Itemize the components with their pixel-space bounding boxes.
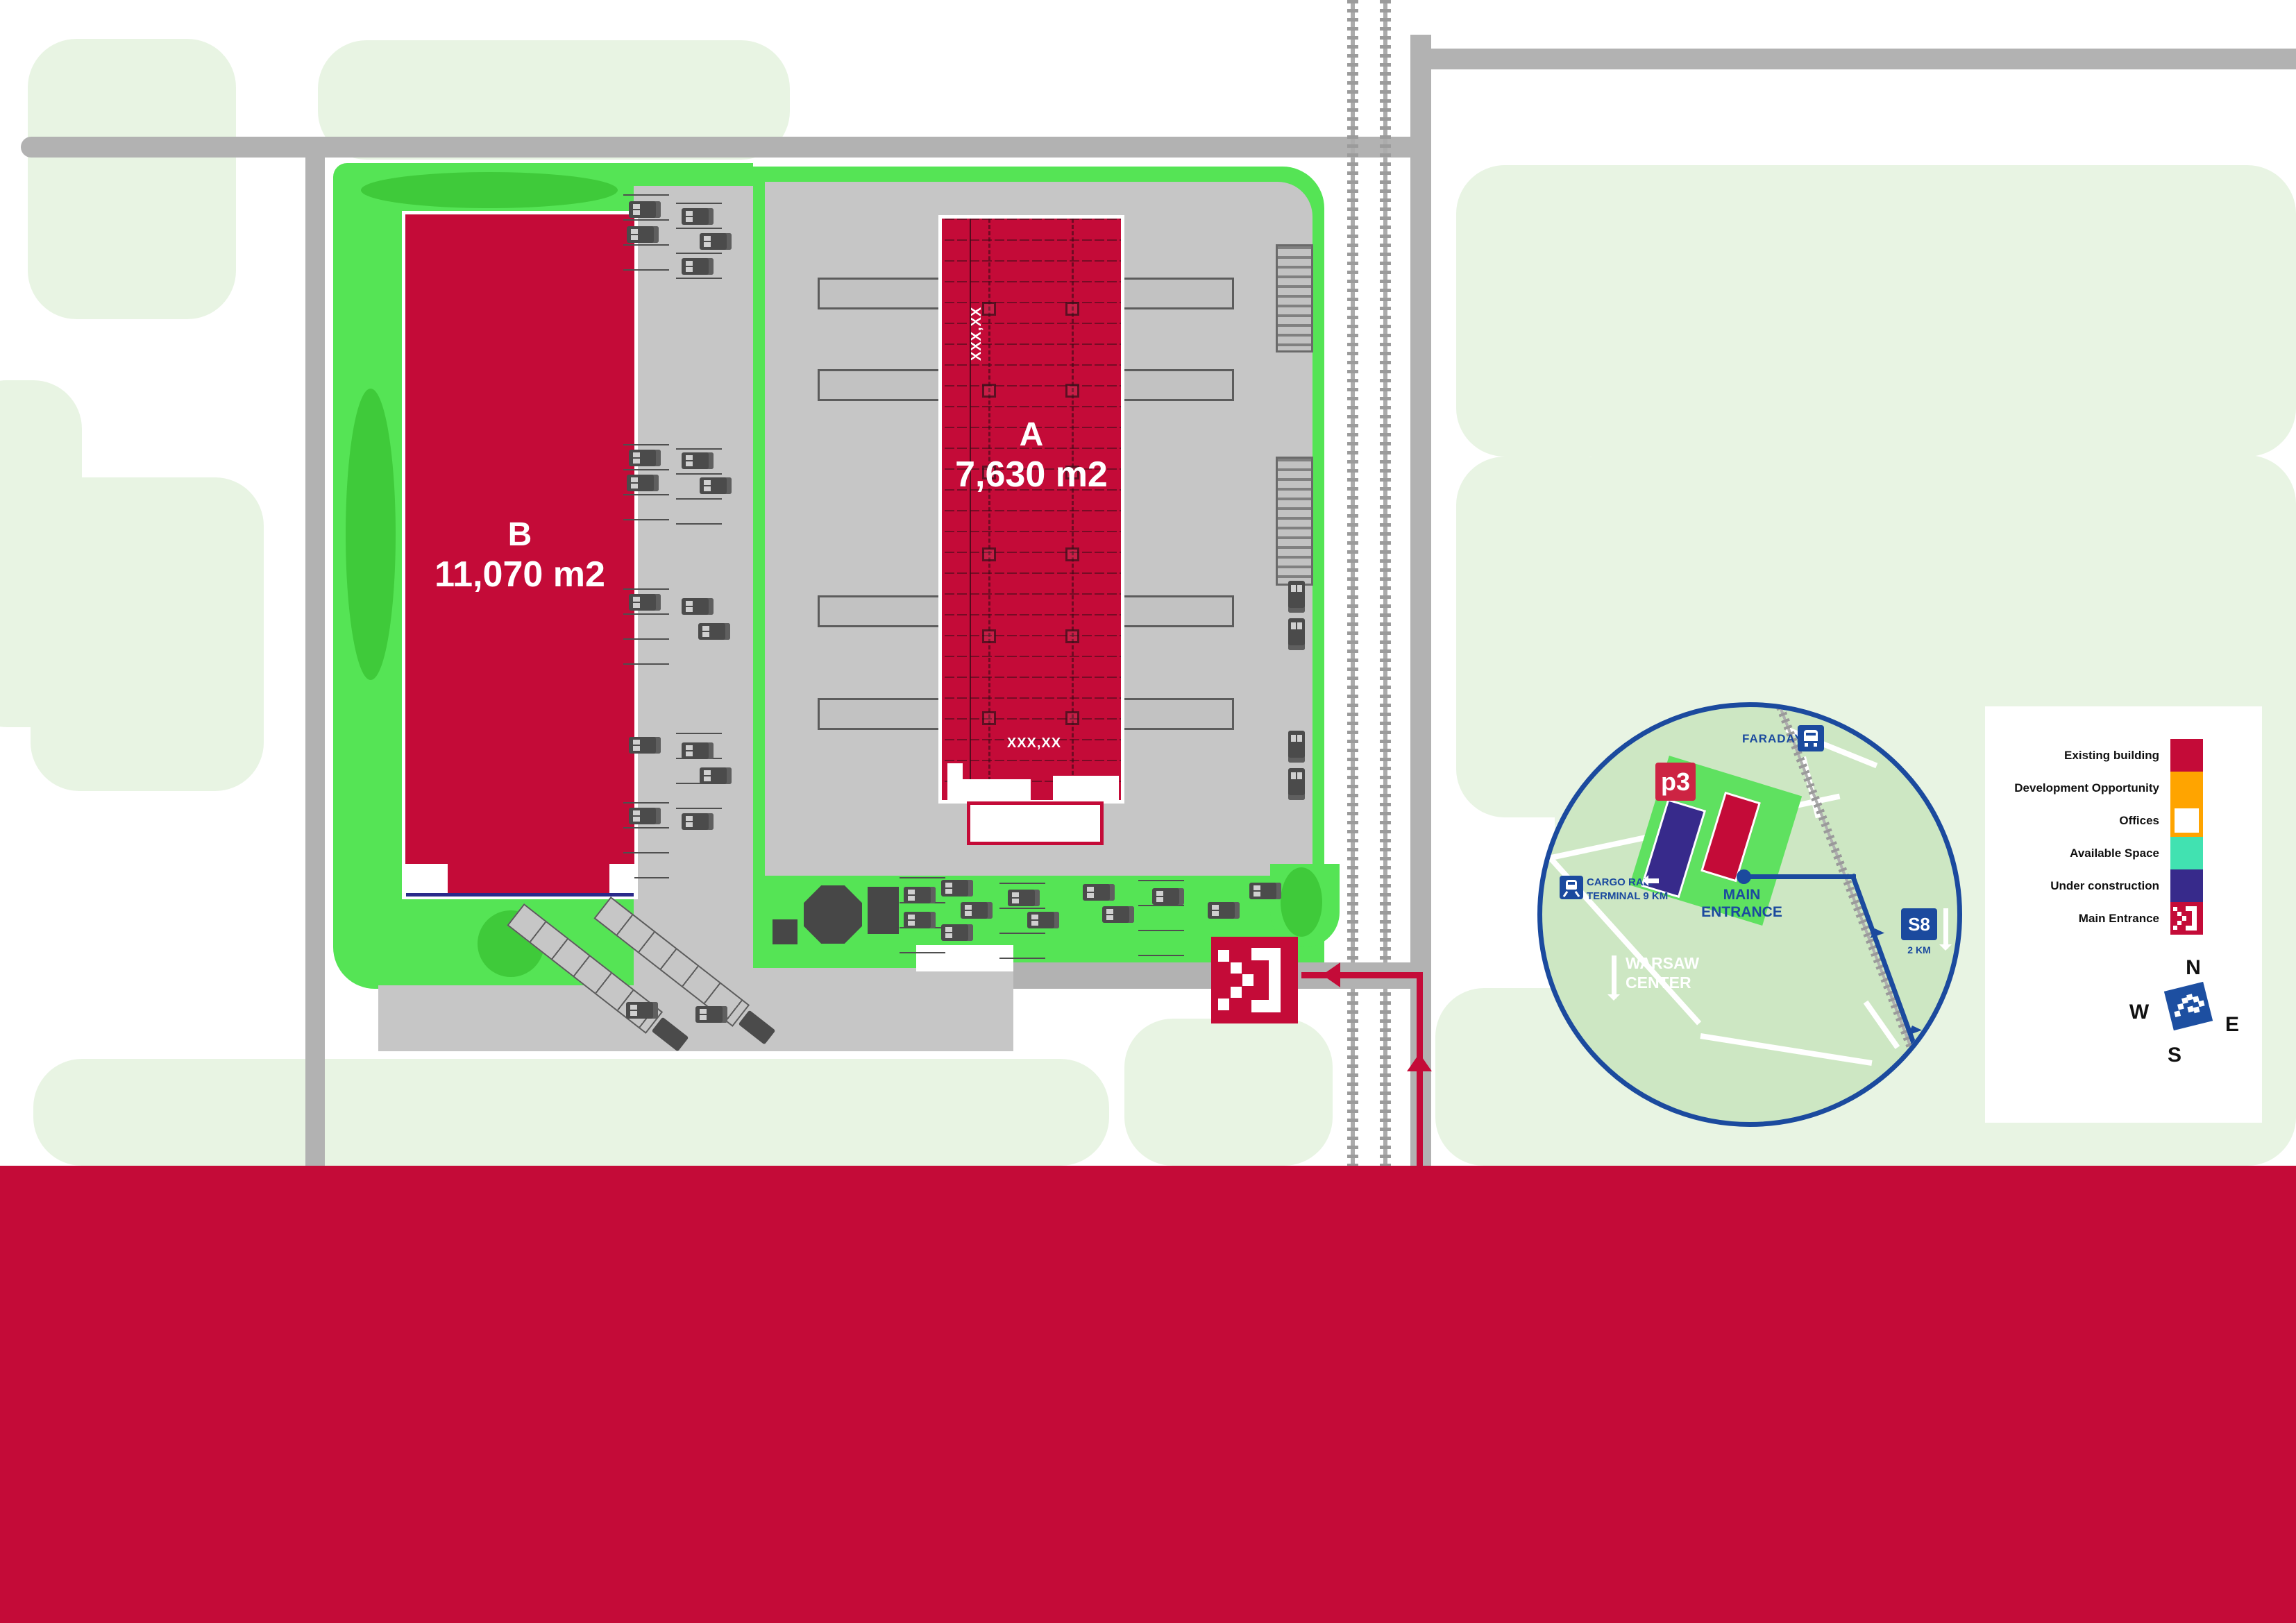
truck-icon <box>629 450 661 466</box>
truck-icon <box>904 912 936 928</box>
main-entrance-label: MAIN ENTRANCE <box>1681 886 1803 921</box>
loading-platform <box>818 278 948 309</box>
loading-platform <box>818 698 948 730</box>
office-cutout <box>609 864 634 896</box>
main-entrance-dot <box>1737 869 1751 884</box>
legend-row: Development Opportunity <box>2014 772 2203 804</box>
truck-icon <box>1152 888 1184 905</box>
road-top-right <box>1431 49 2296 69</box>
truck-icon <box>682 813 714 830</box>
truck-icon <box>629 201 661 218</box>
truck-icon <box>695 1006 727 1023</box>
legend-label: Offices <box>2119 814 2159 828</box>
legend-label: Available Space <box>2070 847 2159 860</box>
legend-label: Under construction <box>2050 879 2159 893</box>
truck-icon <box>941 880 973 897</box>
building-b-label: B 11,070 m2 <box>402 516 638 595</box>
truck-icon <box>1083 884 1115 901</box>
column-marker <box>1065 711 1079 725</box>
entrance-glyph <box>1211 937 1298 1023</box>
legend-label: Existing building <box>2064 749 2159 763</box>
building-a-area: 7,630 m2 <box>938 454 1124 495</box>
compass-north: N <box>2179 956 2207 980</box>
column-marker <box>982 547 996 561</box>
truck-icon <box>629 594 661 611</box>
location-minimap: p3 FARADAYA MAIN ENTRANCE CARGO RAIL TER… <box>1537 702 1962 1127</box>
railway-track <box>1380 0 1391 1166</box>
building-a-dim-bottom: XXX,XX <box>993 736 1076 751</box>
truck-icon <box>682 258 714 275</box>
yard-south <box>736 968 1013 1051</box>
minimap-building-existing <box>1700 792 1761 883</box>
building-a-footprint <box>942 219 1121 800</box>
park-area <box>33 1059 1109 1166</box>
minimap-road <box>1700 1033 1872 1066</box>
truck-icon <box>682 598 714 615</box>
column-marker <box>982 384 996 398</box>
office-cutout <box>947 779 1031 801</box>
column-marker <box>1065 547 1079 561</box>
building-a-id: A <box>938 416 1124 454</box>
minimap-route <box>1745 874 1856 879</box>
legend-swatch-existing <box>2170 739 2203 772</box>
cargo-rail-line2: TERMINAL 9 KM <box>1587 890 1668 902</box>
bus-stop-icon <box>1798 725 1824 751</box>
cargo-rail-arrow <box>1646 878 1659 883</box>
truck-icon <box>629 737 661 754</box>
truck-icon <box>682 208 714 225</box>
truck-icon <box>1288 581 1305 613</box>
column-marker <box>982 711 996 725</box>
truck-icon <box>1102 906 1134 923</box>
truck-icon <box>629 808 661 824</box>
compass-west: W <box>2125 1001 2153 1024</box>
column-marker <box>1065 302 1079 316</box>
column-marker <box>1065 384 1079 398</box>
truck-icon <box>682 742 714 759</box>
cargo-rail-icon <box>1560 876 1583 899</box>
p3-logo: p3 <box>1655 763 1696 801</box>
legend-swatch-construction <box>2170 869 2203 902</box>
loading-platform <box>818 595 948 627</box>
legend-row: Offices <box>2119 804 2203 837</box>
legend-swatch-main-entrance <box>2170 902 2203 935</box>
truck-icon <box>1008 890 1040 906</box>
loading-platform <box>1119 698 1234 730</box>
landscape-blob <box>361 172 618 208</box>
legend-label: Main Entrance <box>2079 912 2159 926</box>
loading-platform <box>818 369 948 401</box>
truck-icon <box>1288 768 1305 800</box>
legend-row: Existing building <box>2064 739 2203 772</box>
legend-label: Development Opportunity <box>2014 781 2159 795</box>
compass-south: S <box>2161 1044 2188 1067</box>
loading-platform <box>1119 595 1234 627</box>
park-area <box>31 477 264 791</box>
s8-sign: S8 <box>1901 908 1937 940</box>
truck-icon <box>1249 883 1281 899</box>
railway-track <box>1347 0 1358 1166</box>
column-marker <box>982 629 996 643</box>
compass-icon <box>2164 982 2213 1030</box>
building-b-id: B <box>402 516 638 554</box>
storage-rack <box>1276 457 1313 586</box>
building-a-label: A 7,630 m2 <box>938 416 1124 495</box>
legend-row: Under construction <box>2050 869 2203 902</box>
park-area <box>28 39 236 319</box>
entrance-route-arrow <box>1322 962 1340 987</box>
office-cutout <box>1053 776 1119 801</box>
entrance-route <box>1301 972 1423 978</box>
site-plan-poster: B 11,070 m2 A 7,630 m2 XXX,XX XXX,XX <box>0 0 2296 1623</box>
legend-swatch-offices <box>2170 804 2203 837</box>
storage-rack <box>1276 244 1313 352</box>
legend-swatch-available <box>2170 837 2203 869</box>
building-a: A 7,630 m2 <box>938 215 1124 804</box>
legend-swatch-development <box>2170 772 2203 804</box>
warsaw-arrow <box>1612 955 1617 999</box>
p3-logo-text: p3 <box>1661 767 1690 796</box>
road-vertical-west <box>305 146 325 1166</box>
building-b: B 11,070 m2 <box>402 211 638 899</box>
technical-building <box>773 919 797 944</box>
landscape-blob <box>1281 867 1322 937</box>
truck-icon <box>1288 731 1305 763</box>
truck-icon <box>1288 618 1305 650</box>
technical-building <box>868 887 899 934</box>
grid-line <box>970 219 971 800</box>
s8-sign-text: S8 <box>1908 914 1930 935</box>
truck-icon <box>627 475 659 491</box>
s8-arrow <box>1943 908 1948 949</box>
park-area <box>1124 1019 1333 1166</box>
truck-icon <box>961 902 993 919</box>
truck-icon <box>1027 912 1059 928</box>
road-top <box>21 137 1410 158</box>
column-marker <box>1065 629 1079 643</box>
s8-distance: 2 KM <box>1901 944 1937 955</box>
truck-icon <box>626 1002 658 1019</box>
truck-icon <box>627 226 659 243</box>
office-annex <box>967 801 1104 845</box>
legend-row: Main Entrance <box>2079 902 2203 935</box>
park-area <box>1456 165 2296 457</box>
warsaw-center-line1: WARSAW <box>1626 954 1699 973</box>
building-b-baseline <box>406 893 634 897</box>
loading-platform <box>1119 369 1234 401</box>
warsaw-center-line2: CENTER <box>1626 974 1691 992</box>
truck-icon <box>700 233 732 250</box>
truck-icon <box>904 887 936 903</box>
truck-icon <box>1208 902 1240 919</box>
truck-icon <box>698 623 730 640</box>
building-a-dim-vertical: XXX,XX <box>969 307 985 361</box>
brand-red-band <box>0 1166 2296 1623</box>
entrance-glyph <box>2170 902 2203 935</box>
building-b-area: 11,070 m2 <box>402 554 638 595</box>
entrance-route-arrow <box>1407 1053 1432 1071</box>
truck-icon <box>700 477 732 494</box>
legend-panel: Existing building Development Opportunit… <box>1985 706 2262 1123</box>
compass-east: E <box>2218 1013 2246 1037</box>
truck-icon <box>682 452 714 469</box>
truck-icon <box>700 767 732 784</box>
truck-icon <box>941 924 973 941</box>
landscape-blob <box>346 389 396 680</box>
legend-row: Available Space <box>2070 837 2203 869</box>
main-entrance-icon <box>1211 937 1298 1023</box>
loading-platform <box>1119 278 1234 309</box>
office-cutout <box>405 864 448 896</box>
